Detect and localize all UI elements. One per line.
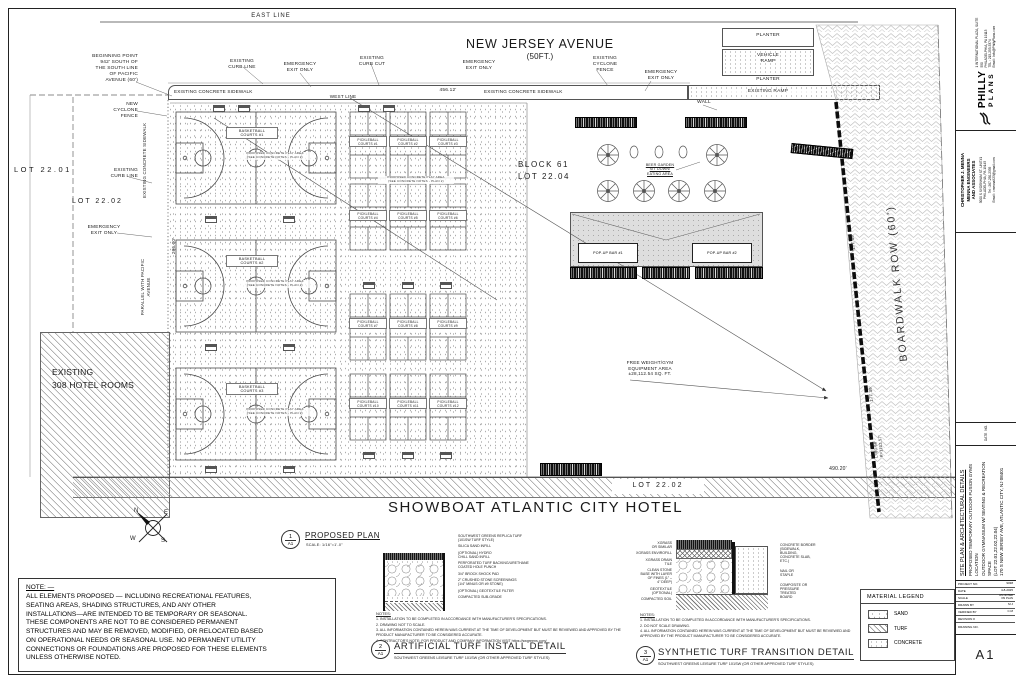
lot-2201-label: LOT 22.01: [14, 165, 84, 174]
row-key: REVISION #: [958, 617, 975, 621]
table-icon: [679, 146, 687, 158]
bench-icon: [283, 466, 295, 473]
row-value: AS NOTED ON PLAN: [999, 595, 1013, 601]
lot-2202-bottom-label: LOT 22.02: [633, 482, 684, 491]
wall-label: WALL: [692, 100, 716, 106]
emergency-exit-3: EMERGENCY EXIT ONLY: [637, 70, 685, 82]
bench-icon: [205, 216, 217, 223]
turf-transition-title: SYNTHETIC TURF TRANSITION DETAIL: [658, 647, 854, 660]
showboat-label: SHOWBOAT ATLANTIC CITY HOTEL: [388, 499, 683, 518]
note-item: 4. ALL INFORMATION CONTAINED HEREIN WAS …: [640, 629, 858, 638]
table-row: VERIFIED BYC.M: [956, 609, 1015, 616]
callout: CLEAN STONE BASE WITH LAYER OF FINES (1"…: [616, 568, 672, 584]
turf-install-subtitle: SOUTHWEST GREENS LEISURE TURF 101SW (OR …: [394, 656, 550, 660]
row-value: 9038: [1006, 582, 1013, 585]
proposed-plan-sheet-ref: A1: [288, 541, 294, 546]
pickleball-court-3-label: PICKLEBALL COURTS #3: [429, 136, 467, 147]
basketball-court-3-label: BASKETBALL COURTS #3: [226, 383, 278, 395]
turf-transition-sheet-ref: A1: [643, 657, 649, 662]
callout: GEOTEXTILE (OPTIONAL): [616, 587, 672, 595]
proposed-plan-bubble: 1 A1: [281, 530, 300, 549]
existing-cyclone-fence: EXISTING CYCLONE FENCE: [583, 56, 627, 74]
table-row: REVISION #: [956, 616, 1015, 623]
row-value: M.J: [1008, 603, 1013, 606]
revision-header: DATE NO.: [959, 425, 1013, 441]
callout: NAIL OR STAPLE: [780, 569, 852, 577]
legend-label: TURF: [894, 626, 907, 632]
note-item: 3. ALL INFORMATION CONTAINED HEREIN WAS …: [376, 628, 638, 637]
project-info-table: PROJECT NO.9038 DATE4-8-2025 SCALEAS NOT…: [956, 581, 1015, 634]
turf-install-sheet-ref: A1: [378, 651, 384, 656]
callout: XGRASS OR SIMILAR: [616, 541, 672, 549]
bench-icon: [205, 466, 217, 473]
callout: (OPTIONAL) HYDRO CHILL SAND INFILL: [458, 551, 576, 559]
existing-curb-line-left: EXISTING CURB LINE: [96, 168, 138, 180]
legend-item-turf: TURF: [868, 624, 954, 633]
basketball-court-1-label: BASKETBALL COURTS #1: [226, 127, 278, 139]
bleacher-bar: [540, 463, 602, 476]
bench-icon: [402, 282, 414, 289]
umbrella-table-icon: [705, 181, 726, 202]
turf-transition-notes: NOTES: 1. INSTALLATION TO BE COMPLETED I…: [640, 612, 858, 640]
callout: COMPACTED SOIL: [616, 597, 672, 601]
callout: COMPOSITE OR PRESSURE TREATED BOARD: [780, 583, 852, 599]
callout: XGRASS ENVIROFILL: [616, 551, 672, 555]
callout: COMPACTED SUB-GRADE: [458, 595, 576, 599]
dim-left-label: 206.00': [171, 233, 177, 259]
bench-icon: [440, 452, 452, 459]
notes-heading: NOTES:: [376, 611, 638, 616]
bleacher-bar: [575, 117, 637, 128]
callout: SILICA SAND INFILL: [458, 544, 576, 548]
table-row: SCALEAS NOTED ON PLAN: [956, 595, 1015, 602]
menna-name: CHRISTOPHER J. MENNA MENNA ENGINEERS AND…: [960, 132, 977, 228]
sheet-title-2: PROPOSED TEMPORARY OUTDOOR FUSION GYMS L…: [968, 450, 993, 576]
vehicle-ramp-label: VEHICLE RAMP: [740, 53, 796, 65]
revision-date-header: DATE: [984, 433, 988, 441]
table-icon: [655, 146, 663, 158]
compass-e: E: [164, 510, 168, 518]
court-note-3: PROPOSED CONCRETE PLAY AREA (SEE CONCRET…: [236, 408, 314, 416]
callout: (OPTIONAL) GEOTEXTILE FILTER: [458, 589, 576, 593]
existing-curb-line-top: EXISTING CURB LINE: [216, 59, 268, 71]
showboat-plate: SHOWBOAT ATLANTIC CITY HOTEL: [278, 498, 793, 518]
turf-transition-bubble: 3 A1: [636, 646, 655, 665]
legend-label: CONCRETE: [894, 640, 922, 646]
boardwalk-area: [816, 25, 952, 518]
proposed-plan-scale: SCALE: 1/16"=1'-0": [306, 543, 396, 548]
compass-w: W: [130, 536, 136, 544]
umbrella-table-icon: [707, 145, 728, 166]
row-key: DATE: [958, 589, 966, 593]
lot-2202-left-label: LOT 22.02: [72, 198, 142, 207]
turf-transition-number: 3: [640, 650, 652, 657]
turf-swatch: [868, 624, 888, 633]
hotel-rooms-label: EXISTING 308 HOTEL ROOMS: [52, 366, 162, 392]
beginning-point-note: BEGINNING POINT 942' SOUTH OF THE SOUTH …: [50, 54, 138, 84]
court-note-2: PROPOSED CONCRETE PLAY AREA (SEE CONCRET…: [236, 280, 314, 288]
parallel-pacific-label: PARALLEL WITH PACIFIC AVENUE: [140, 241, 151, 333]
popup-bar-2: POP-UP BAR #2: [692, 243, 752, 263]
new-cyclone-fence-label: NEW CYCLONE FENCE: [100, 102, 138, 120]
sheet-title-1: SITE PLAN & ARCHITECTURAL DETAILS: [960, 450, 966, 576]
note-item: 2. DRAWING NOT TO SCALE.: [376, 623, 638, 628]
bench-icon: [283, 216, 295, 223]
bench-icon: [363, 282, 375, 289]
street-name: NEW JERSEY AVENUE: [440, 37, 640, 53]
turf-install-title: ARTIFICIAL TURF INSTALL DETAIL: [394, 641, 566, 654]
popup-bar-1: POP-UP BAR #1: [578, 243, 638, 263]
row-key: DRAWING NO.: [958, 625, 979, 629]
bench-icon: [283, 344, 295, 351]
lot-2202-bottom-plate: LOT 22.02: [612, 479, 704, 494]
plans-brand: PLANS: [988, 71, 995, 109]
proposed-plan-number: 1: [285, 534, 297, 541]
bleacher-bar: [685, 117, 747, 128]
material-legend-title: MATERIAL LEGEND: [861, 590, 954, 604]
proposed-plan-title: PROPOSED PLAN: [305, 531, 425, 541]
table-row: DRAWN BYM.J: [956, 602, 1015, 609]
concrete-swatch: [868, 639, 888, 648]
compass-s: S: [161, 538, 165, 546]
bench-icon: [440, 282, 452, 289]
sheet-title-3: (LOT 22.01,22.02,22.04) 170 S NEW JERSEY…: [993, 450, 1006, 576]
popup-bar-1-label: POP-UP BAR #1: [593, 251, 623, 255]
compass-n: N: [134, 508, 139, 516]
table-icon: [630, 146, 638, 158]
emergency-exit-1: EMERGENCY EXIT ONLY: [276, 62, 324, 74]
turf-install-section: [383, 553, 445, 611]
bench-icon: [363, 452, 375, 459]
pickleball-court-9-label: PICKLEBALL COURTS #9: [429, 318, 467, 329]
pickleball-court-6-label: PICKLEBALL COURTS #6: [429, 210, 467, 221]
popup-bar-2-label: POP-UP BAR #2: [707, 251, 737, 255]
row-key: VERIFIED BY: [958, 610, 977, 614]
pickleball-court-11-label: PICKLEBALL COURTS #11: [389, 398, 427, 409]
block61-label: BLOCK 61 LOT 22.04: [518, 159, 598, 183]
basketball-court-2-label: BASKETBALL COURTS #2: [226, 255, 278, 267]
pickleball-court-5-label: PICKLEBALL COURTS #5: [389, 210, 427, 221]
turf-install-callouts: SOUTHWEST GREENS REPLICA TURF (101SW TUR…: [458, 534, 576, 601]
existing-curb-cut: EXISTING CURB CUT: [348, 56, 396, 68]
umbrella-table-icon: [634, 181, 655, 202]
bench-icon: [238, 105, 250, 112]
umbrella-table-icon: [598, 181, 619, 202]
firm-menna-block: CHRISTOPHER J. MENNA MENNA ENGINEERS AND…: [958, 130, 1014, 230]
drawing-sheet: POP-UP BAR #1 POP-UP BAR #2 EAST LINE NE…: [0, 0, 1024, 683]
turf-transition-callouts-right: CONCRETE BORDER (SIDEWALK, BUILDING, CON…: [780, 543, 852, 602]
row-key: SCALE: [958, 596, 968, 600]
general-note-box: NOTE: — ALL ELEMENTS PROPOSED — INCLUDIN…: [18, 578, 336, 672]
dim-top: 456.12': [428, 88, 468, 94]
philly-plans-info: 1 INTERNATIONAL PLAZA, SUITE 550 PHILADE…: [975, 12, 997, 68]
turf-transition-subtitle: SOUTHWEST GREENS LEISURE TURF 101SW (OR …: [658, 662, 814, 666]
note-item: 2. DO NOT SCALE DRAWING.: [640, 624, 858, 629]
philly-plans-logo: [979, 111, 994, 126]
menna-info: 3000 S SYDENHAM ST. UNIT#1 PHILADELPHIA,…: [979, 132, 996, 228]
sidewalk-label-1: EXISTING CONCRETE SIDEWALK: [174, 89, 294, 95]
sheet-number: A1: [956, 634, 1015, 675]
note-item: 1. INSTALLATION TO BE COMPLETED IN ACCOR…: [376, 617, 638, 622]
sheet-title-block: SITE PLAN & ARCHITECTURAL DETAILS PROPOS…: [958, 448, 1014, 578]
existing-ramp-label: EXISTING RAMP: [722, 89, 814, 95]
note-body: ALL ELEMENTS PROPOSED — INCLUDING RECREA…: [26, 593, 328, 663]
planter-bottom-label: PLANTER: [740, 77, 796, 83]
sidewalk-vertical-label: EXISTING CONCRETE SIDEWALK: [142, 98, 148, 198]
bench-icon: [213, 105, 225, 112]
bleacher-bar: [570, 267, 637, 279]
umbrella-table-icon: [598, 145, 619, 166]
free-weight-label: FREE WEIGHT/GYM EQUIPMENT AREA ±28,112.5…: [612, 360, 688, 377]
bench-icon: [205, 344, 217, 351]
callout: CONCRETE BORDER (SIDEWALK, BUILDING, CON…: [780, 543, 852, 563]
sidewalk-label-2: EXISTING CONCRETE SIDEWALK: [484, 89, 604, 95]
table-row: DRAWING NO.: [956, 623, 1015, 630]
emergency-exit-4: EMERGENCY EXIT ONLY: [80, 225, 128, 237]
dim-bottom-label: 490.20': [818, 466, 858, 472]
bench-icon: [383, 105, 395, 112]
pickleball-court-1-label: PICKLEBALL COURTS #1: [349, 136, 387, 147]
turf-install-bubble: 2 A1: [371, 640, 390, 659]
legend-item-concrete: CONCRETE: [868, 639, 954, 648]
court-note-1: PROPOSED CONCRETE PLAY AREA (SEE CONCRET…: [236, 152, 314, 160]
pickleball-court-8-label: PICKLEBALL COURTS #8: [389, 318, 427, 329]
umbrella-table-icon: [669, 181, 690, 202]
pickleball-court-7-label: PICKLEBALL COURTS #7: [349, 318, 387, 329]
bench-icon: [358, 105, 370, 112]
table-row: PROJECT NO.9038: [956, 581, 1015, 588]
callout: 3/4" BROCK SHOCK PAD: [458, 572, 576, 576]
turf-install-notes: NOTES: 1. INSTALLATION TO BE COMPLETED I…: [376, 611, 638, 644]
callout: PERFORATED TURF BACKING/URETHANE COATED …: [458, 561, 576, 569]
beer-garden-label: BEER GARDEN SIT DOWN/ EATING AREA: [634, 163, 686, 176]
sand-swatch: [868, 610, 888, 619]
planter-top-label: PLANTER: [740, 33, 796, 39]
notes-heading: NOTES:: [640, 612, 858, 617]
revision-no-header: NO.: [984, 425, 988, 431]
callout: XGRASS DRAIN TILE: [616, 558, 672, 566]
material-legend: MATERIAL LEGEND SAND TURF CONCRETE: [860, 589, 955, 661]
philly-brand: PHILLY: [977, 71, 988, 109]
turf-install-number: 2: [375, 644, 387, 651]
callout: SOUTHWEST GREENS REPLICA TURF (101SW TUR…: [458, 534, 576, 542]
firm-philly-plans-block: PHILLY PLANS 1 INTERNATIONAL PLAZA, SUIT…: [958, 10, 1014, 128]
row-value: 4-8-2025: [1001, 589, 1013, 592]
bench-icon: [402, 452, 414, 459]
row-key: DRAWN BY: [958, 603, 974, 607]
legend-item-sand: SAND: [868, 610, 954, 619]
pickleball-court-12-label: PICKLEBALL COURTS #12: [429, 398, 467, 409]
note-title: NOTE: —: [26, 584, 328, 591]
turf-transition-callouts-left: XGRASS OR SIMILAR XGRASS ENVIROFILL XGRA…: [616, 541, 672, 604]
pickleball-court-2-label: PICKLEBALL COURTS #2: [389, 136, 427, 147]
pickleball-note: PROPOSED CONCRETE PLAY AREA (SEE CONCRET…: [378, 176, 454, 184]
bleacher-bar: [695, 267, 763, 279]
bleacher-bar: [642, 267, 690, 279]
emergency-exit-2: EMERGENCY EXIT ONLY: [455, 60, 503, 72]
legend-label: SAND: [894, 611, 908, 617]
pickleball-court-10-label: PICKLEBALL COURTS #10: [349, 398, 387, 409]
pickleball-court-4-label: PICKLEBALL COURTS #4: [349, 210, 387, 221]
row-key: PROJECT NO.: [958, 582, 978, 586]
turf-transition-section: [676, 540, 768, 610]
east-line-label: EAST LINE: [246, 13, 296, 21]
row-value: C.M: [1008, 610, 1014, 613]
west-line-label: WEST LINE: [318, 94, 368, 100]
callout: 2" CRUSHED STONE SCREENINGS (1/4" MINUS …: [458, 578, 576, 586]
note-item: 1. INSTALLATION TO BE COMPLETED IN ACCOR…: [640, 618, 858, 623]
